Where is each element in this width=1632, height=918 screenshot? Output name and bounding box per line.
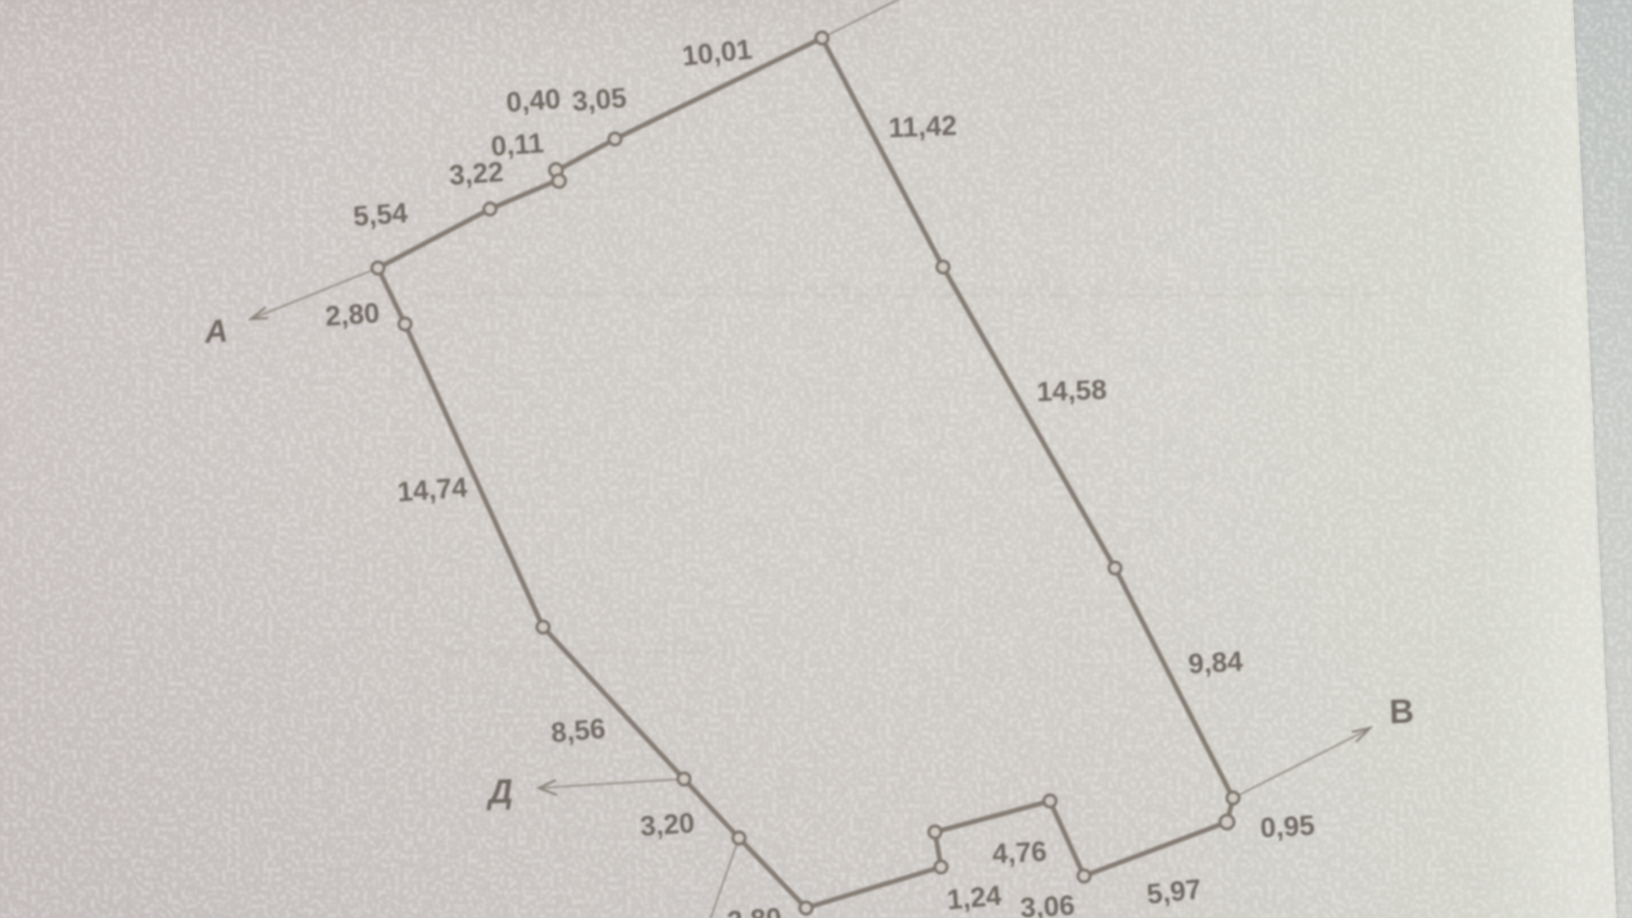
svg-text:А: А [202,312,229,350]
svg-text:0,40: 0,40 [505,83,562,118]
svg-text:14,74: 14,74 [396,472,468,508]
svg-text:Д: Д [485,773,514,812]
svg-text:3,20: 3,20 [639,807,696,842]
svg-text:9,84: 9,84 [1187,646,1243,680]
svg-text:4,76: 4,76 [991,836,1047,870]
svg-text:3,05: 3,05 [571,82,628,117]
svg-text:3,06: 3,06 [1019,890,1075,918]
svg-text:5,54: 5,54 [352,197,409,232]
svg-text:3,22: 3,22 [448,156,505,191]
svg-text:5,97: 5,97 [1145,873,1202,910]
svg-text:1,24: 1,24 [946,880,1003,916]
svg-text:2,80: 2,80 [726,902,783,918]
svg-text:2,80: 2,80 [324,297,381,332]
svg-text:В: В [1389,693,1415,732]
svg-text:8,56: 8,56 [550,713,607,749]
svg-text:11,42: 11,42 [888,110,958,143]
svg-text:14,58: 14,58 [1036,374,1107,407]
svg-text:0,95: 0,95 [1259,810,1315,844]
